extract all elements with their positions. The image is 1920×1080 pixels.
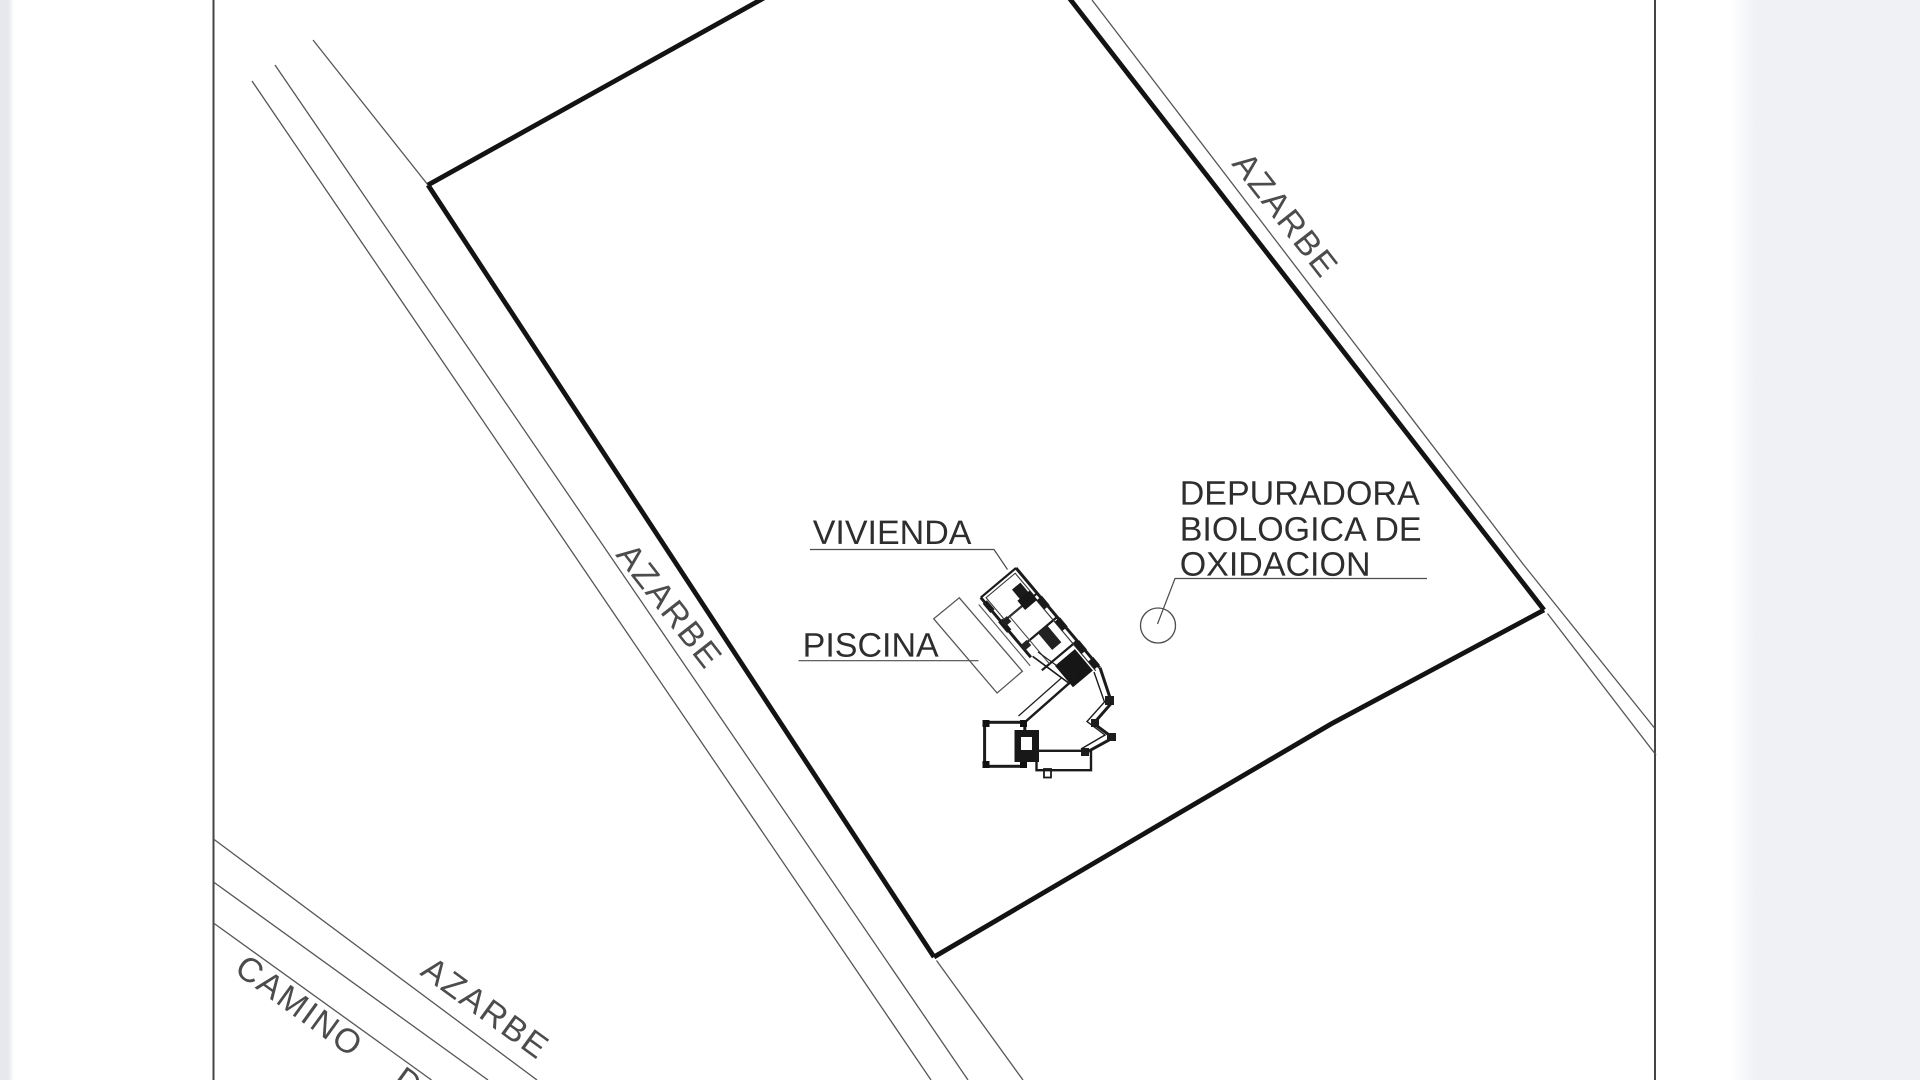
svg-text:PISCINA: PISCINA [803, 627, 939, 665]
svg-text:DEPURADORA: DEPURADORA [1180, 475, 1420, 513]
svg-text:CAMINO: CAMINO [228, 948, 370, 1066]
svg-text:VIVIENDA: VIVIENDA [813, 514, 972, 552]
svg-text:BIOLOGICA DE: BIOLOGICA DE [1180, 511, 1422, 549]
svg-text:AZARBE: AZARBE [609, 537, 730, 677]
svg-text:DEL: DEL [386, 1060, 467, 1080]
svg-text:AZARBE: AZARBE [1225, 146, 1346, 286]
svg-text:AZARBE: AZARBE [414, 950, 556, 1068]
